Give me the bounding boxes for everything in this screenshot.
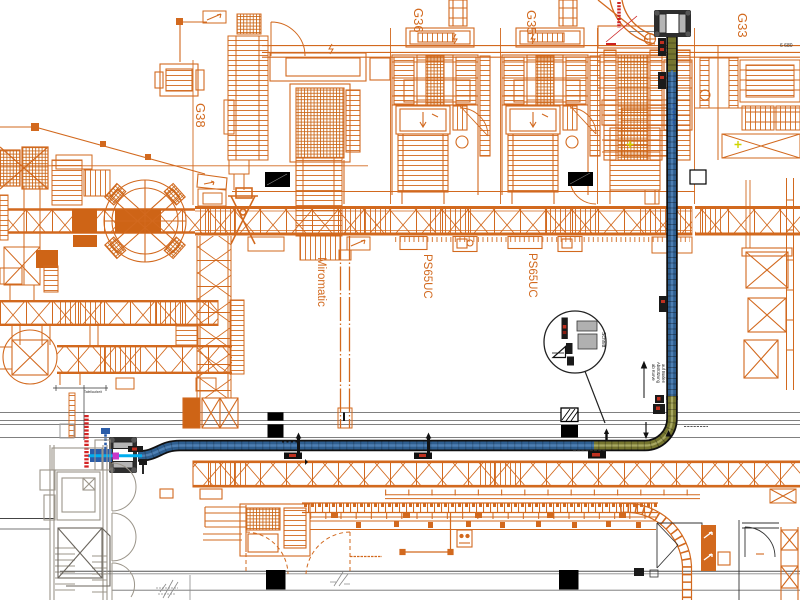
svg-text:PS65UC: PS65UC — [526, 253, 538, 298]
svg-text:PS65UC: PS65UC — [421, 254, 433, 299]
svg-text:ab Kurve: ab Kurve — [651, 364, 656, 381]
svg-text:Abstützung: Abstützung — [656, 362, 661, 384]
svg-text:auf Boden: auf Boden — [661, 364, 666, 384]
svg-text:G38: G38 — [193, 103, 208, 128]
svg-text:Miromatic: Miromatic — [315, 257, 327, 307]
svg-text:Tafellaufzeit: Tafellaufzeit — [84, 390, 102, 394]
svg-text:G33: G33 — [735, 13, 750, 38]
svg-text:G35: G35 — [524, 10, 539, 35]
svg-text:G36: G36 — [411, 8, 426, 33]
svg-text:Schnitt: Schnitt — [600, 332, 606, 348]
svg-text:6 680: 6 680 — [780, 43, 793, 49]
